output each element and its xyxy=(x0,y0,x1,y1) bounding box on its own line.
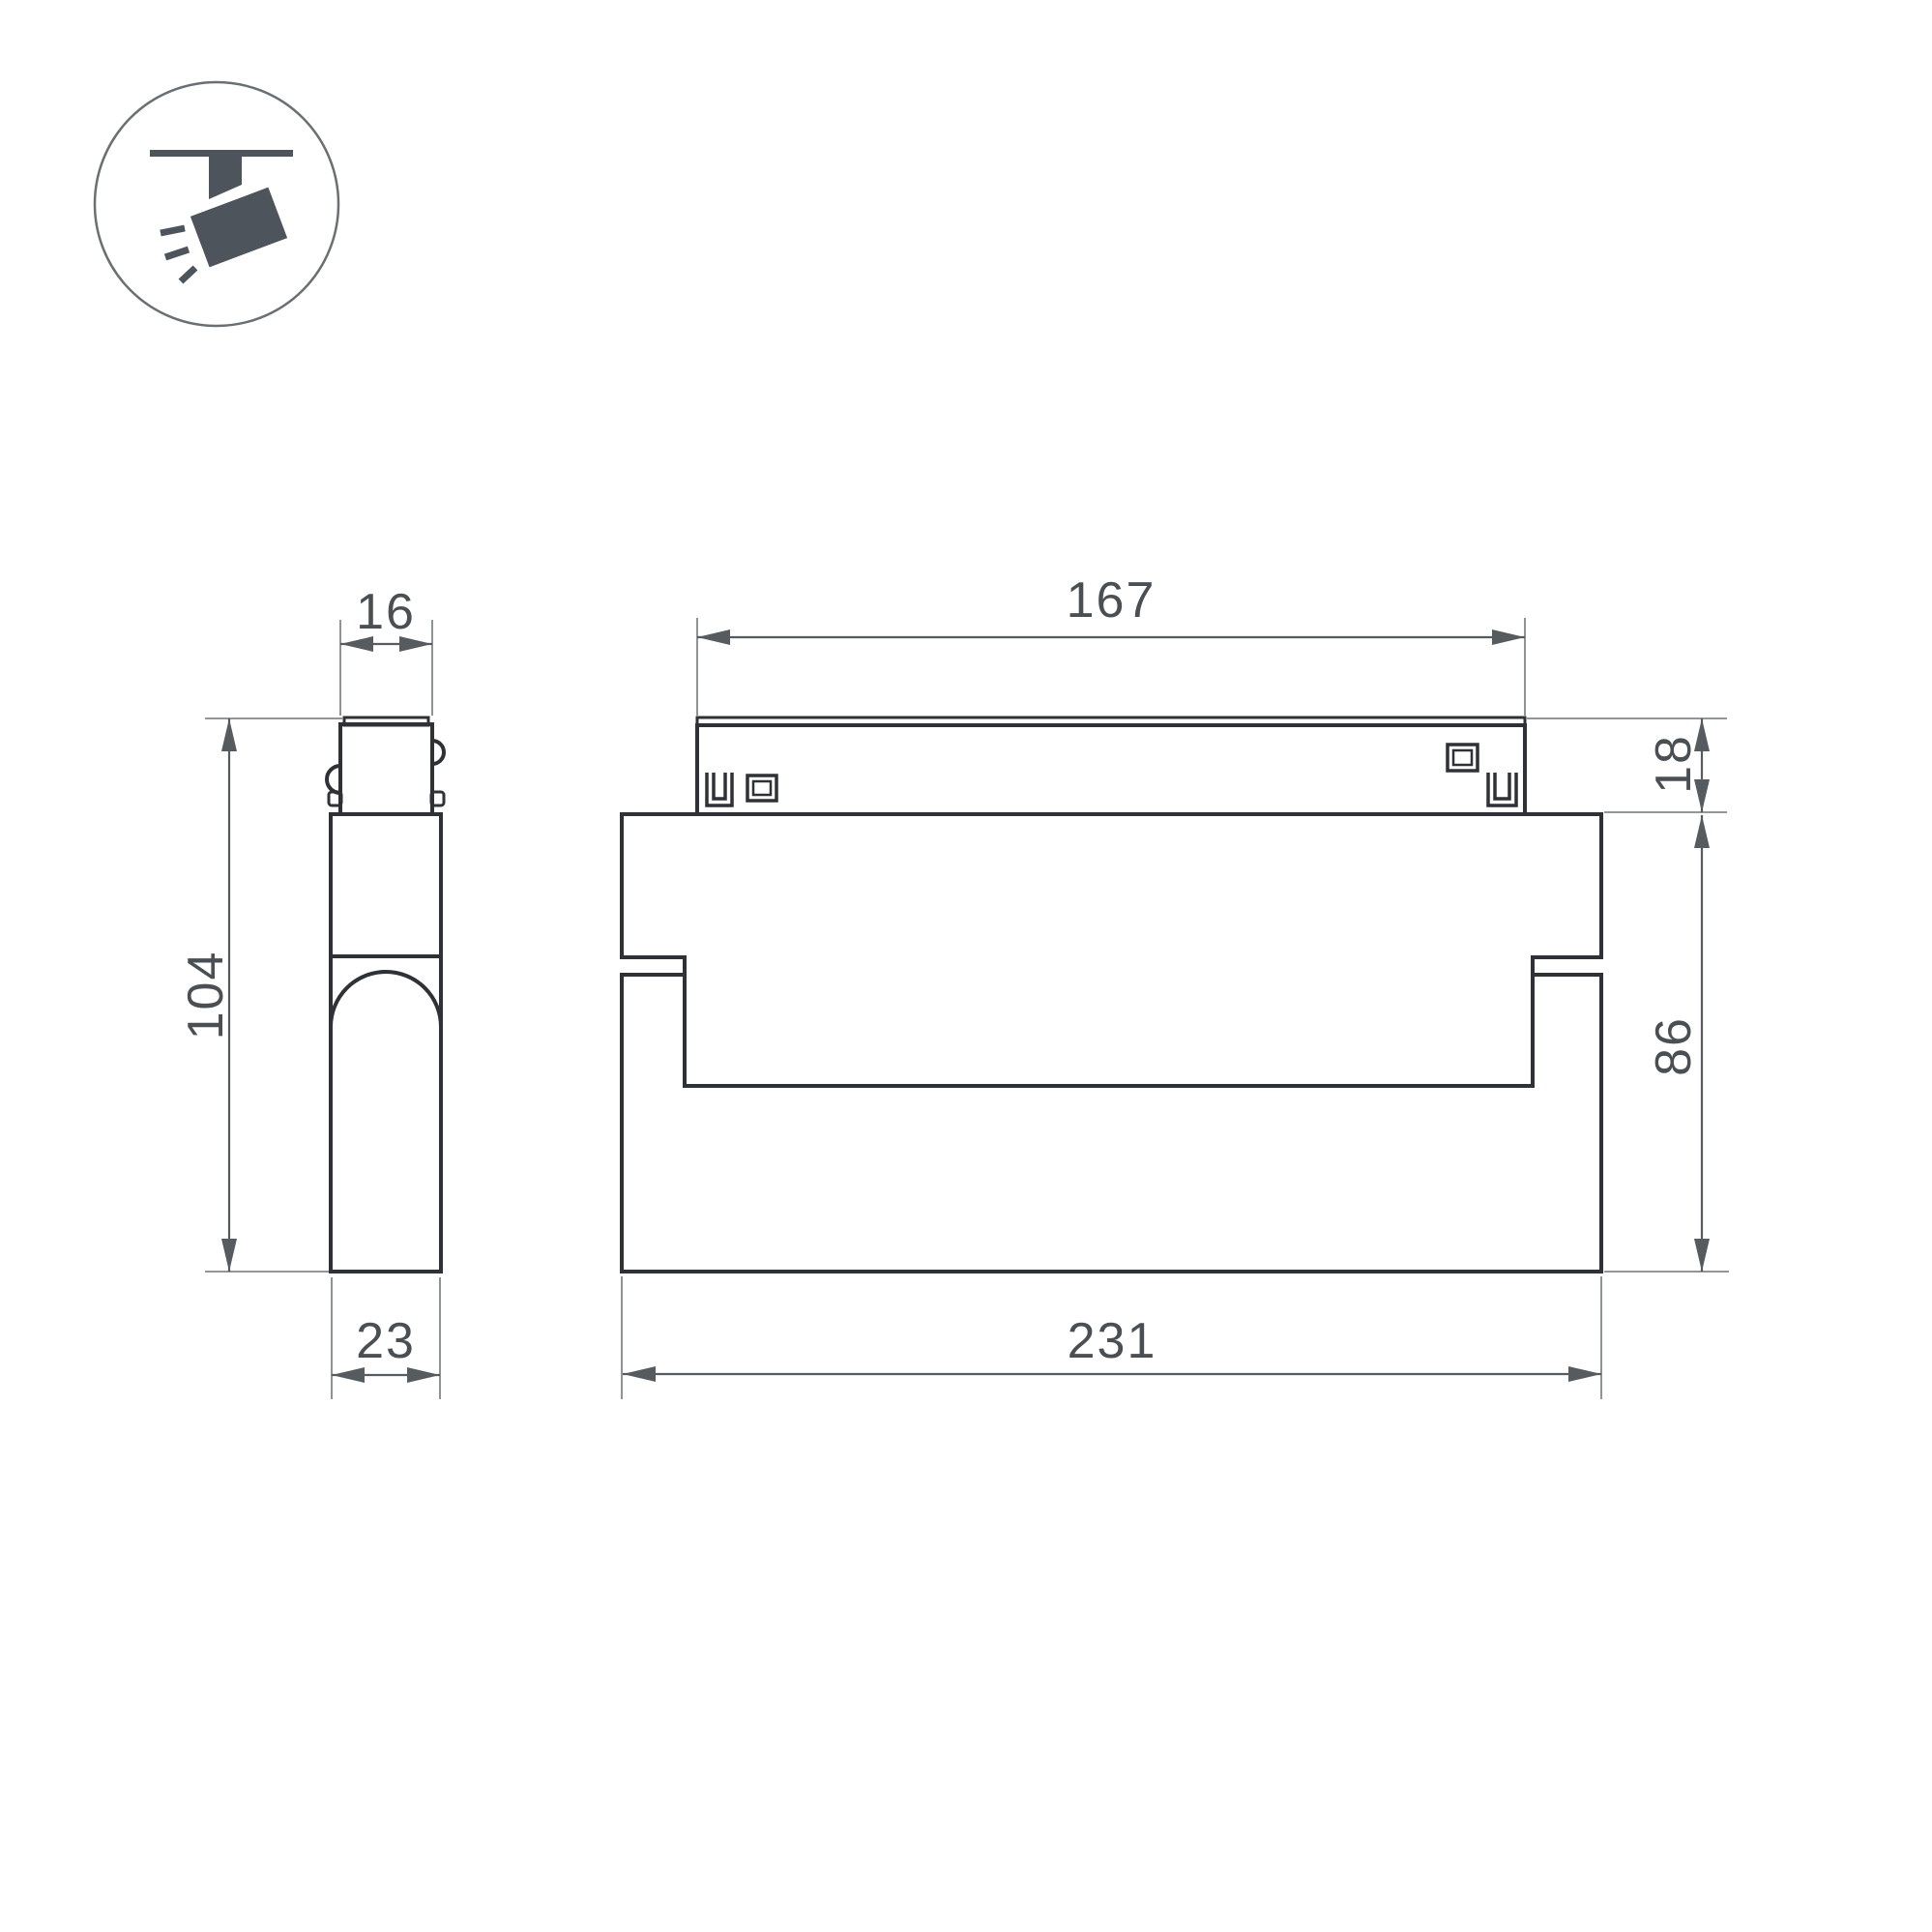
dim-label-front-track-length: 167 xyxy=(1067,572,1156,629)
track-spotlight-badge xyxy=(95,82,338,326)
front-view xyxy=(622,717,1601,1272)
front-track-connector xyxy=(697,725,1525,813)
dim-label-front-track-height: 18 xyxy=(1646,734,1702,794)
dimension-drawing: 16 104 23 167 18 86 231 xyxy=(0,0,1932,1932)
clip-u-left-inner xyxy=(714,773,725,799)
clip-square-right-inner xyxy=(1453,750,1472,765)
dim-label-side-width-top: 16 xyxy=(356,584,416,640)
dim-label-side-depth: 23 xyxy=(356,1313,416,1369)
dim-label-front-body-length: 231 xyxy=(1068,1313,1157,1369)
dim-label-side-height: 104 xyxy=(178,951,234,1040)
side-clip-bump-left xyxy=(327,766,340,793)
front-body-outline xyxy=(622,814,1601,1272)
clip-square-right-outer xyxy=(1448,745,1478,771)
clip-square-left-inner xyxy=(753,781,771,795)
clip-u-left-outer xyxy=(707,773,732,805)
side-track-connector xyxy=(340,724,432,813)
side-body xyxy=(331,814,441,1272)
dim-label-front-body-height: 86 xyxy=(1646,1016,1702,1076)
clip-u-right-inner xyxy=(1495,773,1509,799)
front-track-clips xyxy=(707,745,1516,805)
side-view xyxy=(327,717,444,1272)
clip-u-right-outer xyxy=(1488,773,1516,805)
technical-drawing-page: 16 104 23 167 18 86 231 xyxy=(0,0,1932,1932)
badge-circle xyxy=(95,82,338,326)
clip-square-left-outer xyxy=(747,776,776,801)
